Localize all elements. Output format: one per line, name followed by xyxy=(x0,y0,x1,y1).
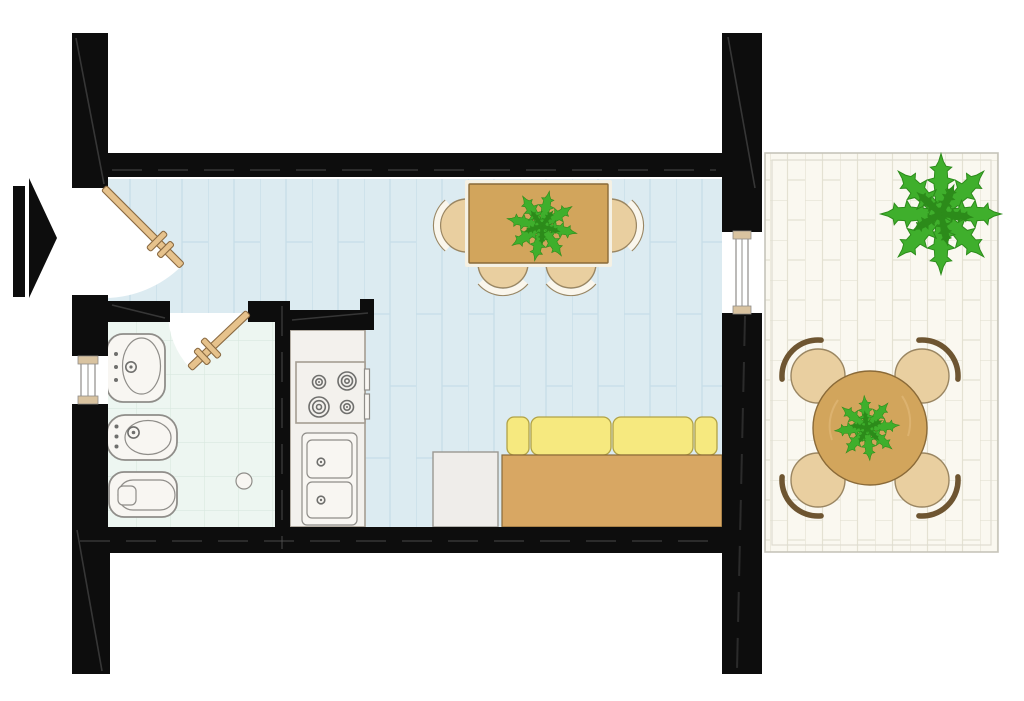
wall-column-top-right xyxy=(722,33,762,232)
terrace-corner-plant xyxy=(881,154,1002,275)
bathroom-sink xyxy=(107,334,165,402)
sofa-armrest-right xyxy=(695,417,717,455)
sofa-cushion xyxy=(613,417,693,455)
kitchen-sink xyxy=(302,433,357,525)
wall-column-bottom-left xyxy=(72,527,110,674)
wall-right xyxy=(722,313,762,674)
floor-drain xyxy=(236,473,252,489)
floor-plan xyxy=(0,0,1024,701)
oven-handle xyxy=(365,369,370,390)
wall-kitchen-stub xyxy=(360,299,374,330)
wall-bottom xyxy=(72,527,724,553)
bidet xyxy=(107,415,177,460)
toilet xyxy=(109,472,177,517)
window-right xyxy=(722,231,762,314)
side-table xyxy=(433,452,498,527)
window-left xyxy=(72,356,108,404)
wall-left-lower xyxy=(72,402,108,529)
wall-top xyxy=(108,153,724,177)
floor-plan-page xyxy=(0,0,1024,701)
sofa-cushion xyxy=(531,417,611,455)
stove xyxy=(296,362,370,423)
wall-left-upper xyxy=(72,295,108,358)
sofa-armrest-left xyxy=(507,417,529,455)
sofa-seat xyxy=(502,455,722,527)
oven-handle xyxy=(365,394,370,419)
kitchen-counter xyxy=(290,330,370,527)
